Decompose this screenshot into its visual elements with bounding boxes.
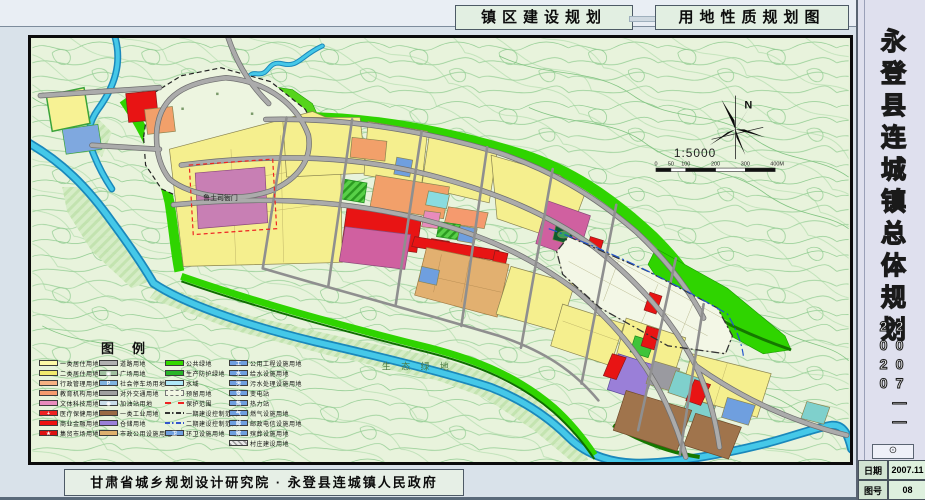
- legend-swatch: 污: [229, 380, 248, 387]
- legend-item-label: 广场用地: [120, 369, 146, 378]
- legend-item: 保护范围: [165, 398, 229, 408]
- legend-item: ◉加油站用地: [99, 398, 165, 408]
- legend-item-label: 一类居住用地: [60, 359, 99, 368]
- legend-item: ▣广场用地: [99, 368, 165, 378]
- legend-swatch: 殡: [229, 430, 248, 437]
- legend-item-label: 加油站用地: [120, 399, 153, 408]
- plan-sheet: 镇区建设规划 用地性质规划图: [0, 0, 925, 500]
- header-map-title: 用地性质规划图: [655, 5, 849, 30]
- legend-swatch-icon: 污: [230, 381, 247, 387]
- legend-item: 教育机构用地: [39, 388, 99, 398]
- legend-swatch: [165, 360, 184, 367]
- legend-swatch-icon: 气: [230, 411, 247, 417]
- legend-swatch-icon: ▣: [100, 371, 117, 377]
- legend-item-label: 污水处理设施用地: [250, 379, 302, 388]
- legend-swatch: [165, 370, 184, 377]
- legend-swatch-icon: +: [40, 411, 57, 417]
- scale-tick: 400M: [770, 162, 784, 168]
- legend-swatch-icon: 卫: [166, 431, 183, 437]
- legend-item-label: 公共绿地: [186, 359, 212, 368]
- legend-item-label: 医疗保健用地: [60, 409, 99, 418]
- legend-swatch-icon: 邮: [230, 421, 247, 427]
- legend-item-label: 道路用地: [120, 359, 146, 368]
- legend-swatch: [39, 380, 58, 387]
- legend-item: ★集贸市场用地: [39, 428, 99, 438]
- legend-item-label: 生产防护绿地: [186, 369, 225, 378]
- credit-bar: 甘肃省城乡规划设计研究院 · 永登县连城镇人民政府: [64, 469, 464, 496]
- legend-item: 热热力站: [229, 398, 329, 408]
- scale-tick: 100: [681, 162, 690, 168]
- legend-swatch: [39, 370, 58, 377]
- legend-item: 卫环卫设施用地: [165, 428, 229, 438]
- sidebar-divider: [864, 0, 865, 500]
- legend-item-label: 殡葬设施用地: [250, 429, 289, 438]
- number-value: 08: [888, 480, 925, 500]
- legend-swatch: [165, 380, 184, 387]
- legend-swatch: [99, 390, 118, 397]
- scale-tick: 0: [654, 162, 657, 168]
- legend-item: 二期建设控制范围: [165, 418, 229, 428]
- title-sidebar: 永登县连城镇总体规划 2007——2020 ⊙ 日期 2007.11 图号 08: [856, 0, 925, 500]
- legend-item-label: 仓储用地: [120, 419, 146, 428]
- legend-item: 商业金融用地: [39, 418, 99, 428]
- legend-swatch-icon: 热: [230, 401, 247, 407]
- legend-swatch: +: [39, 410, 58, 417]
- legend-item: P社会停车场用地: [99, 378, 165, 388]
- legend-item-label: 行政管理用地: [60, 379, 99, 388]
- legend-swatch-icon: 工: [230, 361, 247, 367]
- legend-item: 一类工业用地: [99, 408, 165, 418]
- legend-item-label: 一类工业用地: [120, 409, 159, 418]
- legend-item-label: 邮政电信设施用地: [250, 419, 302, 428]
- scale-tick: 300: [741, 162, 750, 168]
- legend-item-label: 环卫设施用地: [186, 429, 225, 438]
- legend-item: 对外交通用地: [99, 388, 165, 398]
- scale-text: 1:5000: [674, 146, 716, 160]
- legend-item-label: 给水设施用地: [250, 369, 289, 378]
- legend-item: 预留用地: [165, 388, 229, 398]
- legend-swatch: [165, 400, 184, 407]
- legend-swatch: [39, 360, 58, 367]
- legend-item: 气燃气设施用地: [229, 408, 329, 418]
- legend-item: 公共绿地: [165, 358, 229, 368]
- legend-item-label: 热力站: [250, 399, 270, 408]
- legend-swatch-icon: 殡: [230, 431, 247, 437]
- legend-item-label: 商业金融用地: [60, 419, 99, 428]
- eco-label: 生 态 绿 地: [382, 361, 453, 372]
- legend-swatch-icon: 水: [230, 371, 247, 377]
- legend-item: 生产防护绿地: [165, 368, 229, 378]
- legend-swatch: 工: [229, 360, 248, 367]
- legend-item-label: 公用工程设施用地: [250, 359, 302, 368]
- legend-item: 水域: [165, 378, 229, 388]
- legend-column: 工公用工程设施用地水给水设施用地污污水处理设施用地变变电站热热力站气燃气设施用地…: [229, 358, 329, 448]
- legend-item-label: 燃气设施用地: [250, 409, 289, 418]
- legend-swatch-icon: ★: [40, 431, 57, 437]
- legend-item-label: 教育机构用地: [60, 389, 99, 398]
- legend-item-label: 社会停车场用地: [120, 379, 166, 388]
- legend-item: 一期建设控制范围: [165, 408, 229, 418]
- legend-swatch: [229, 440, 248, 447]
- legend-column: 公共绿地生产防护绿地水域预留用地保护范围一期建设控制范围二期建设控制范围卫环卫设…: [165, 358, 229, 448]
- legend-item-label: 对外交通用地: [120, 389, 159, 398]
- legend-item: 道路用地: [99, 358, 165, 368]
- legend-item: 二类居住用地: [39, 368, 99, 378]
- legend-column: 道路用地▣广场用地P社会停车场用地对外交通用地◉加油站用地一类工业用地仓储用地市…: [99, 358, 165, 448]
- legend-swatch: ▣: [99, 370, 118, 377]
- legend-item-label: 保护范围: [186, 399, 212, 408]
- legend-item: 一类居住用地: [39, 358, 99, 368]
- legend-item: 邮邮政电信设施用地: [229, 418, 329, 428]
- legend-swatch-icon: P: [100, 381, 117, 387]
- legend-swatch: ★: [39, 430, 58, 437]
- legend-swatch: ◉: [99, 400, 118, 407]
- legend-swatch: 变: [229, 390, 248, 397]
- date-label: 日期: [858, 460, 888, 480]
- legend-swatch: [165, 420, 184, 427]
- legend-item: 文体科技用地: [39, 398, 99, 408]
- legend-swatch: 气: [229, 410, 248, 417]
- legend-item: 工公用工程设施用地: [229, 358, 329, 368]
- map-canvas: 鲁土司衙门 生 态 绿 地 N 1:5000: [28, 35, 853, 465]
- legend-swatch: P: [99, 380, 118, 387]
- scale-tick: 200: [711, 162, 720, 168]
- legend-swatch: [39, 420, 58, 427]
- legend-item-label: 二类居住用地: [60, 369, 99, 378]
- legend-swatch: [99, 430, 118, 437]
- legend-swatch: [99, 420, 118, 427]
- landmark-label: 鲁土司衙门: [203, 193, 238, 202]
- legend-item-label: 水域: [186, 379, 199, 388]
- legend-item: 殡殡葬设施用地: [229, 428, 329, 438]
- legend-swatch: [99, 360, 118, 367]
- date-value: 2007.11: [888, 460, 925, 480]
- header-connector: [629, 16, 658, 22]
- legend-item: 行政管理用地: [39, 378, 99, 388]
- legend-item: 村庄建设用地: [229, 438, 329, 448]
- header-plan-title: 镇区建设规划: [455, 5, 633, 30]
- number-label: 图号: [858, 480, 888, 500]
- seal-mark: ⊙: [872, 444, 914, 459]
- legend-item: 变变电站: [229, 388, 329, 398]
- legend-item-label: 文体科技用地: [60, 399, 99, 408]
- legend-item: 水给水设施用地: [229, 368, 329, 378]
- legend-item-label: 村庄建设用地: [250, 439, 289, 448]
- scale-tick: 50: [668, 162, 674, 168]
- legend-item-label: 预留用地: [186, 389, 212, 398]
- legend-columns: 一类居住用地二类居住用地行政管理用地教育机构用地文体科技用地+医疗保健用地商业金…: [39, 358, 329, 448]
- legend-swatch: 水: [229, 370, 248, 377]
- north-label: N: [744, 100, 752, 112]
- legend-item-label: 变电站: [250, 389, 270, 398]
- legend-swatch: [165, 410, 184, 417]
- legend-item: +医疗保健用地: [39, 408, 99, 418]
- legend-swatch: [39, 400, 58, 407]
- legend-column: 一类居住用地二类居住用地行政管理用地教育机构用地文体科技用地+医疗保健用地商业金…: [39, 358, 99, 448]
- legend-item-label: 集贸市场用地: [60, 429, 99, 438]
- legend-swatch: 卫: [165, 430, 184, 437]
- legend-swatch-icon: ◉: [100, 401, 117, 407]
- legend-swatch-icon: 变: [230, 391, 247, 397]
- legend-item: 污污水处理设施用地: [229, 378, 329, 388]
- sheet-info-table: 日期 2007.11 图号 08: [858, 460, 925, 500]
- legend-item: 仓储用地: [99, 418, 165, 428]
- legend-title: 图例: [101, 338, 163, 357]
- legend-swatch: [99, 410, 118, 417]
- legend-swatch: 热: [229, 400, 248, 407]
- legend-swatch: 邮: [229, 420, 248, 427]
- legend-item: 市政公用设施用地: [99, 428, 165, 438]
- legend-swatch: [39, 390, 58, 397]
- legend-swatch: [165, 390, 184, 397]
- sheet-title-vertical: 永登县连城镇总体规划: [874, 28, 910, 348]
